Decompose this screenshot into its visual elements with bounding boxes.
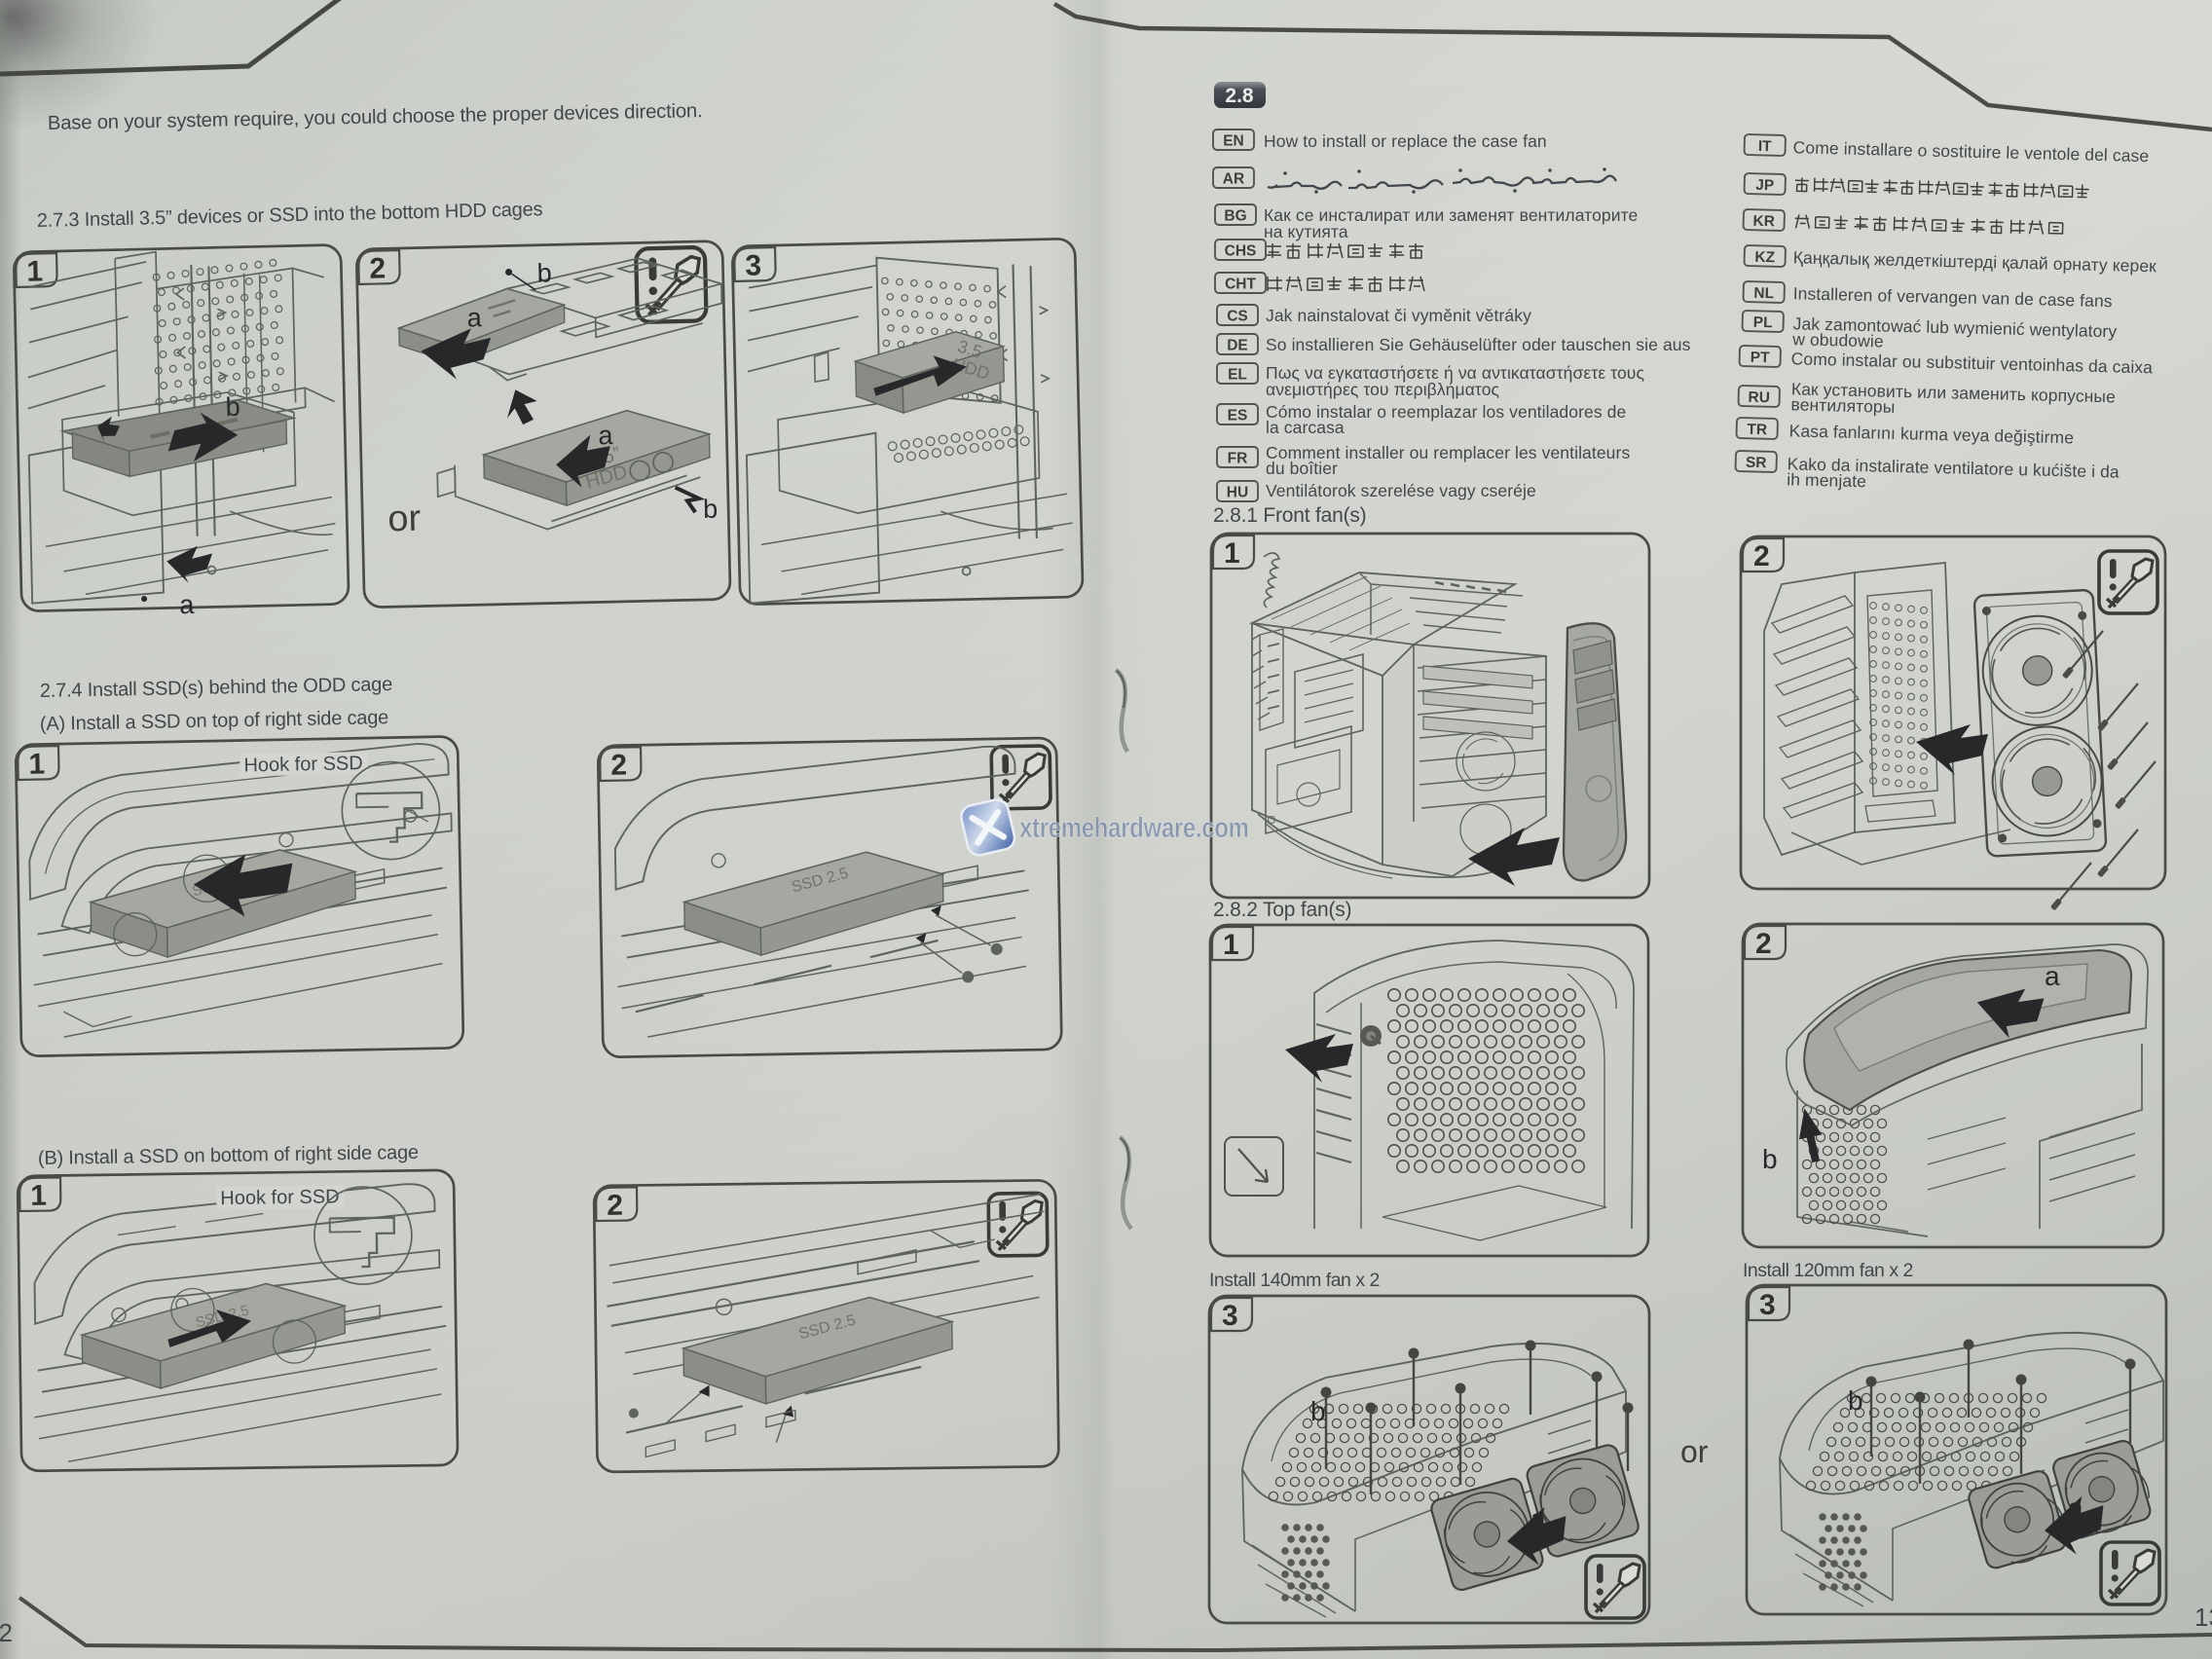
svg-text:RU: RU [1748,389,1770,407]
svg-text:3: 3 [1759,1289,1776,1321]
svg-text:NL: NL [1753,285,1774,303]
svg-text:FR: FR [1228,451,1248,467]
svg-text:PT: PT [1751,350,1771,366]
svg-text:2.8.2 Top fan(s): 2.8.2 Top fan(s) [1213,899,1351,921]
svg-text:du boîtier: du boîtier [1266,459,1338,478]
svg-text:IT: IT [1758,138,1773,155]
svg-text:EL: EL [1228,367,1247,384]
svg-text:2: 2 [1753,540,1770,572]
svg-text:2: 2 [607,1190,623,1222]
svg-text:Ventilátorok szerelése vagy cs: Ventilátorok szerelése vagy cseréje [1266,481,1536,500]
svg-text:xtremehardware.com: xtremehardware.com [1019,810,1249,843]
svg-text:CS: CS [1227,309,1248,325]
svg-text:a: a [598,421,614,450]
svg-text:JP: JP [1755,177,1774,194]
svg-text:b: b [1310,1396,1326,1426]
svg-text:13: 13 [2194,1603,2212,1632]
svg-text:ES: ES [1228,408,1248,424]
svg-text:Install 120mm fan x 2: Install 120mm fan x 2 [1743,1260,1913,1281]
svg-text:2.8: 2.8 [1225,85,1254,107]
svg-text:Hook for SSD: Hook for SSD [220,1186,340,1209]
svg-text:EN: EN [1223,133,1244,150]
svg-text:ανεμιστήρες του περιβλήματος: ανεμιστήρες του περιβλήματος [1266,380,1499,399]
svg-text:PL: PL [1753,314,1773,331]
svg-text:Install 140mm fan x 2: Install 140mm fan x 2 [1209,1270,1380,1291]
svg-text:KZ: KZ [1754,249,1776,267]
svg-text:b: b [703,495,719,524]
svg-text:KR: KR [1752,213,1775,231]
svg-text:2: 2 [610,749,627,781]
svg-text:a: a [2045,961,2060,991]
svg-text:b: b [1762,1144,1778,1174]
svg-text:2: 2 [369,252,386,284]
svg-text:1: 1 [30,1180,47,1212]
svg-text:1: 1 [26,255,43,287]
svg-text:AR: AR [1223,171,1244,188]
svg-text:на кутията: на кутията [1264,222,1348,241]
svg-text:BG: BG [1224,208,1246,225]
svg-text:1: 1 [1223,929,1239,961]
svg-text:a: a [2068,1493,2083,1523]
svg-text:3: 3 [1222,1300,1238,1332]
svg-text:2: 2 [1755,928,1772,960]
svg-text:How to install or replace the: How to install or replace the case fan [1264,131,1547,151]
svg-text:w obudowie: w obudowie [1791,329,1884,350]
svg-text:2.8.1 Front fan(s): 2.8.1 Front fan(s) [1213,504,1366,527]
svg-text:3: 3 [745,249,761,281]
svg-text:HU: HU [1227,485,1248,501]
svg-text:CHT: CHT [1225,276,1256,293]
svg-text:Jak nainstalovat či vyměnit vě: Jak nainstalovat či vyměnit větráky [1266,306,1531,325]
svg-text:TR: TR [1747,422,1767,439]
svg-text:вентиляторы: вентиляторы [1790,394,1895,417]
svg-text:or: or [1680,1434,1709,1469]
svg-text:So installieren Sie Gehäuselüf: So installieren Sie Gehäuselüfter oder t… [1266,335,1691,354]
svg-text:b: b [225,392,240,422]
svg-text:Hook for SSD: Hook for SSD [243,753,363,776]
svg-text:1: 1 [28,748,45,780]
svg-text:la carcasa: la carcasa [1266,418,1345,437]
svg-text:DE: DE [1227,338,1248,354]
svg-text:b: b [536,258,552,287]
svg-text:CHS: CHS [1225,243,1257,260]
svg-text:or: or [387,498,422,540]
svg-text:a: a [179,590,196,619]
svg-text:a: a [1530,1503,1546,1533]
svg-text:SR: SR [1746,455,1767,472]
svg-text:ih menjate: ih menjate [1787,469,1866,491]
svg-text:a: a [466,303,483,332]
svg-text:12: 12 [0,1618,13,1647]
svg-text:1: 1 [1224,537,1240,570]
svg-text:b: b [1848,1385,1863,1416]
